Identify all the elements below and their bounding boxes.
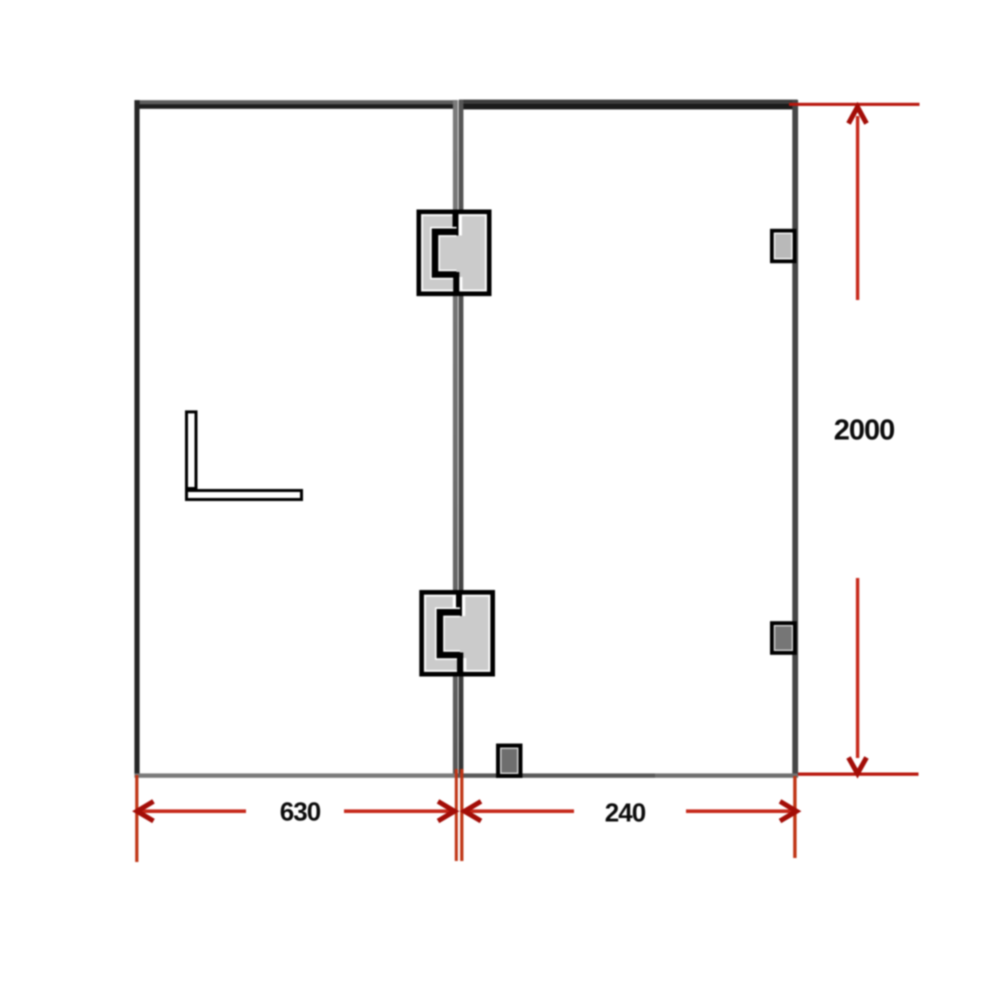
svg-text:240: 240 xyxy=(605,798,646,828)
svg-text:630: 630 xyxy=(280,797,321,827)
svg-text:2000: 2000 xyxy=(834,415,895,447)
